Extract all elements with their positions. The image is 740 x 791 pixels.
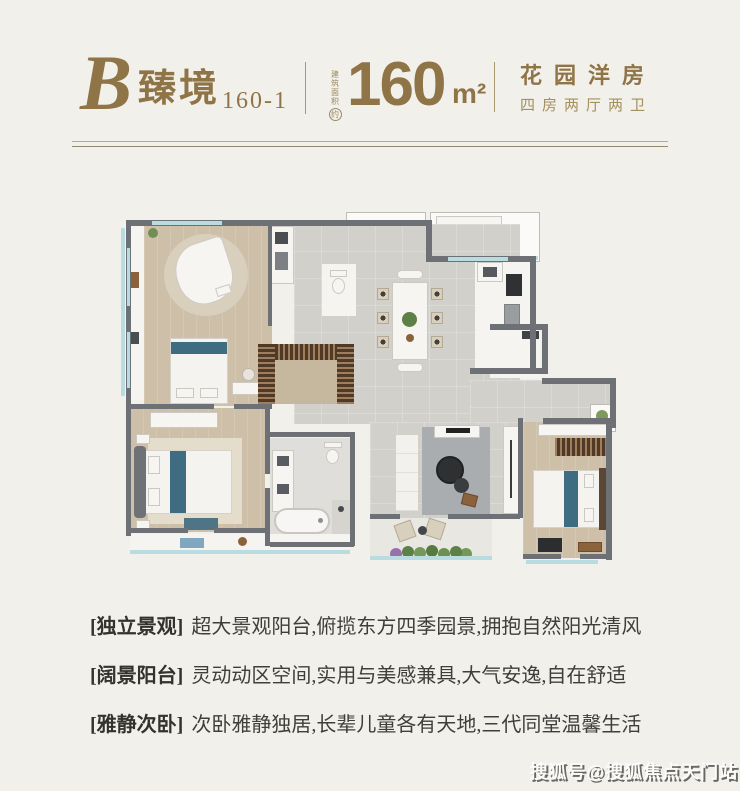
toilet-tank — [330, 270, 347, 277]
feature-text: 超大景观阳台,俯揽东方四季园景,拥抱自然阳光清风 — [191, 616, 641, 638]
wall — [523, 554, 561, 559]
bedroom3-glass — [526, 560, 598, 564]
toilet-bowl — [332, 278, 345, 294]
master-pillow — [148, 456, 160, 474]
kitchen-sink — [483, 267, 497, 277]
dining-end-bench — [397, 270, 423, 279]
wall — [490, 324, 546, 330]
wall — [542, 324, 548, 374]
living-balcony-glass — [370, 556, 492, 560]
bedroom3-shelf — [538, 424, 610, 436]
bath-counter-item — [275, 252, 288, 270]
wall — [580, 554, 612, 559]
left-balcony-glass — [121, 228, 125, 396]
coffee-table-small — [454, 478, 469, 493]
feature-label: [阔景阳台] — [90, 665, 183, 687]
floor-plan — [118, 212, 624, 576]
feature-text: 次卧雅静独居,长辈儿童各有天地,三代同堂温馨生活 — [191, 714, 641, 736]
area-unit: m² — [452, 80, 486, 108]
dining-chair — [431, 336, 443, 348]
double-rule — [72, 141, 668, 147]
bed-1-pillow-2 — [200, 388, 218, 398]
master-pillow-2 — [148, 488, 160, 506]
wall — [130, 528, 188, 533]
bedroom3-bench — [578, 542, 602, 552]
wall — [265, 488, 270, 546]
bed-3-pillow — [584, 474, 594, 488]
feature-text: 灵动动区空间,实用与美感兼具,大气安逸,自在舒适 — [191, 665, 626, 687]
desk-chair — [242, 368, 255, 381]
wall — [350, 432, 355, 546]
wall — [272, 220, 430, 226]
mb-toilet-bowl — [326, 449, 339, 464]
closet-shelf-right — [337, 344, 354, 404]
bed-1-runner — [171, 342, 227, 354]
nightstand — [136, 434, 150, 444]
unit-code: 160-1 — [222, 89, 288, 113]
dining-end-bench-2 — [397, 363, 423, 372]
dining-chair — [377, 312, 389, 324]
dining-centerpiece — [402, 312, 417, 327]
block-letter: B — [80, 44, 132, 122]
dining-chair — [431, 312, 443, 324]
wall — [470, 368, 546, 374]
dining-chair — [431, 288, 443, 300]
wall — [610, 378, 616, 428]
media-tv-icon — [510, 440, 512, 498]
wall — [518, 418, 523, 518]
feature-row: [雅静次卧]次卧雅静独居,长辈儿童各有天地,三代同堂温馨生活 — [90, 710, 662, 740]
feature-list: [独立景观]超大景观阳台,俯揽东方四季园景,拥抱自然阳光清风 [阔景阳台]灵动动… — [90, 612, 662, 759]
area-note-text: 建筑面积 — [330, 70, 341, 106]
header-divider-2 — [494, 62, 495, 112]
floorplan-flyer: { "header": { "block_letter": "B", "name… — [0, 0, 740, 791]
master-dresser — [150, 412, 218, 428]
window — [448, 257, 508, 261]
tv-icon — [446, 428, 470, 433]
window — [127, 332, 130, 388]
wall — [370, 514, 400, 519]
area-value: 160 — [347, 54, 444, 116]
window — [152, 221, 222, 225]
master-balcony-glass — [130, 550, 350, 554]
type-subtitle: 四房两厅两卫 — [520, 99, 652, 114]
bedroom3-mat — [538, 538, 562, 552]
sofa — [395, 434, 419, 512]
wall — [448, 514, 520, 519]
wall — [268, 226, 272, 326]
feature-row: [独立景观]超大景观阳台,俯揽东方四季园景,拥抱自然阳光清风 — [90, 612, 662, 642]
type-title: 花园洋房 — [520, 65, 656, 87]
feature-label: [独立景观] — [90, 616, 183, 638]
mb-toilet-tank — [324, 442, 342, 448]
vanity-basin — [277, 456, 289, 466]
tub-faucet-icon — [318, 518, 323, 523]
header-divider-1 — [305, 62, 306, 114]
wall — [270, 432, 354, 437]
bath-sink — [275, 232, 288, 244]
area-note: 建筑面积 约 — [329, 70, 341, 121]
bed-3-pillow-2 — [584, 508, 594, 522]
dining-chair — [377, 336, 389, 348]
window — [127, 248, 130, 306]
wall — [214, 528, 270, 533]
wall — [130, 404, 214, 409]
plant-icon — [148, 228, 158, 238]
closet-shelf-left — [258, 344, 275, 404]
wall — [270, 542, 354, 547]
bed-3-runner — [564, 471, 578, 527]
master-bed-runner — [170, 451, 186, 513]
kitchen-stove — [506, 274, 522, 296]
master-tv-cabinet — [184, 518, 218, 530]
bedroom3-wardrobe — [555, 438, 610, 456]
dining-chair — [377, 288, 389, 300]
watermark: 搜狐号@搜狐焦点天门站 — [529, 758, 738, 784]
master-headboard — [134, 446, 146, 518]
balcony-pot-icon — [238, 537, 247, 546]
vanity-basin-2 — [277, 484, 289, 494]
feature-row: [阔景阳台]灵动动区空间,实用与美感兼具,大气安逸,自在舒适 — [90, 661, 662, 691]
wall — [606, 424, 612, 560]
shower-head-icon — [338, 506, 344, 512]
balcony-mat — [180, 538, 204, 548]
area-note-circled-approx: 约 — [329, 108, 342, 121]
dining-decor — [406, 334, 414, 342]
wall — [543, 418, 610, 424]
wall — [265, 408, 270, 474]
feature-label: [雅静次卧] — [90, 714, 183, 736]
bed-1-pillow — [176, 388, 194, 398]
wall — [542, 378, 616, 384]
unit-name: 臻境 — [138, 70, 220, 108]
patio-table-icon — [418, 526, 427, 535]
wall — [530, 262, 536, 372]
